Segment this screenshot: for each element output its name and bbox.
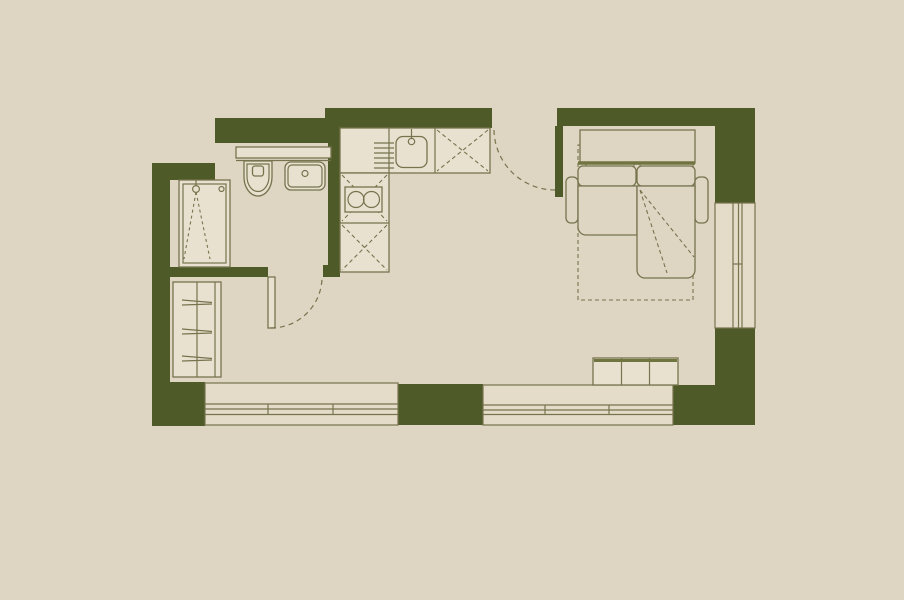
wall-divider-stub	[323, 265, 340, 277]
back-cushion	[637, 166, 695, 186]
wall-right-upper	[715, 126, 755, 203]
wardrobe-icon	[173, 282, 221, 377]
window-right-side	[715, 203, 755, 328]
floor-plan-canvas	[0, 0, 904, 600]
hob-two-burners-icon	[345, 187, 382, 212]
wall-right-lower	[715, 328, 755, 386]
door-swing-icon	[271, 277, 322, 328]
floor-plan	[0, 0, 904, 600]
living-area	[566, 130, 708, 385]
washbasin-icon	[285, 162, 325, 190]
window-icon	[715, 203, 755, 328]
wall-bathroom-kitchen-divider	[328, 118, 340, 277]
seat	[578, 186, 637, 235]
armrest	[695, 177, 708, 223]
kitchen	[340, 128, 555, 272]
toilet-icon	[244, 161, 272, 196]
entry-hall	[173, 282, 221, 377]
armrest	[566, 177, 578, 223]
sofa-frame	[580, 130, 695, 163]
wall-between-windows	[398, 384, 483, 425]
chaise-seat	[637, 186, 695, 278]
wall-bathroom-bottom	[152, 267, 268, 277]
door-swing-icon	[494, 130, 555, 190]
tv-stand-icon	[593, 358, 678, 385]
wall-bottomleft-corner	[152, 382, 205, 426]
shower-icon	[179, 180, 230, 267]
back-cushion	[578, 166, 636, 186]
sofa-bed-icon	[566, 130, 708, 278]
door-leaf	[268, 277, 275, 328]
bathroom-door	[268, 277, 322, 328]
vanity-counter-icon	[236, 147, 331, 161]
window-bottom-right	[483, 385, 673, 425]
wall-bedroom-top	[557, 108, 755, 126]
wall-door-pier	[555, 126, 563, 197]
window-bottom-left	[205, 383, 398, 425]
wall-bottomright-corner	[673, 385, 755, 425]
